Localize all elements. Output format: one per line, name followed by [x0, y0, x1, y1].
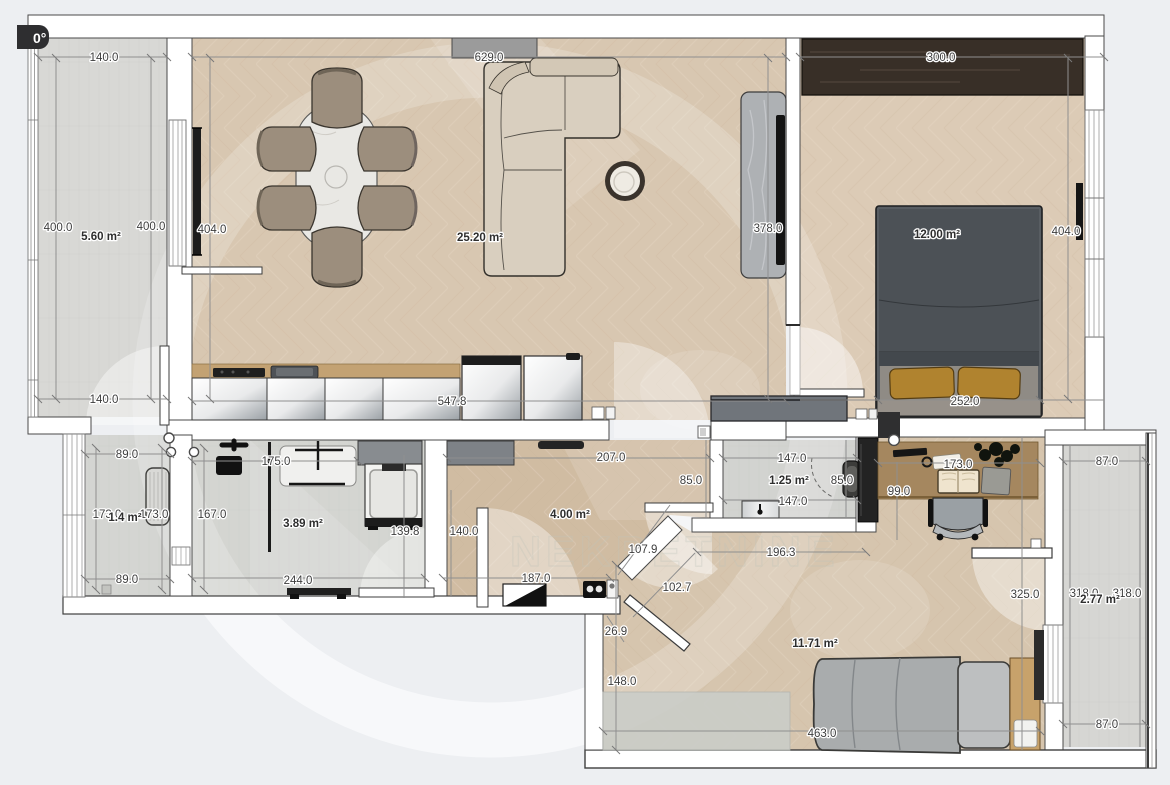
svg-text:147.0: 147.0 — [779, 496, 808, 508]
svg-text:3.89 m²: 3.89 m² — [283, 518, 323, 530]
svg-text:140.0: 140.0 — [90, 52, 119, 64]
svg-text:300.0: 300.0 — [927, 52, 956, 64]
svg-text:102.7: 102.7 — [663, 582, 692, 594]
svg-text:148.0: 148.0 — [608, 676, 637, 688]
svg-text:99.0: 99.0 — [888, 486, 910, 498]
svg-text:175.0: 175.0 — [262, 456, 291, 468]
svg-text:400.0: 400.0 — [44, 222, 73, 234]
svg-text:167.0: 167.0 — [198, 509, 227, 521]
svg-text:0°: 0° — [33, 30, 46, 46]
svg-text:147.0: 147.0 — [778, 453, 807, 465]
svg-text:629.0: 629.0 — [475, 52, 504, 64]
svg-text:5.60 m²: 5.60 m² — [81, 231, 121, 243]
svg-text:2.77 m²: 2.77 m² — [1080, 594, 1120, 606]
svg-text:87.0: 87.0 — [1096, 719, 1118, 731]
svg-text:378.0: 378.0 — [754, 223, 783, 235]
svg-text:463.0: 463.0 — [808, 728, 837, 740]
svg-text:173.0: 173.0 — [944, 459, 973, 471]
svg-text:89.0: 89.0 — [116, 574, 138, 586]
svg-text:139.8: 139.8 — [391, 526, 420, 538]
svg-text:404.0: 404.0 — [198, 224, 227, 236]
svg-text:85.0: 85.0 — [831, 475, 853, 487]
svg-text:107.9: 107.9 — [629, 544, 658, 556]
svg-text:140.0: 140.0 — [450, 526, 479, 538]
svg-text:207.0: 207.0 — [597, 452, 626, 464]
svg-text:252.0: 252.0 — [951, 396, 980, 408]
svg-text:140.0: 140.0 — [90, 394, 119, 406]
svg-text:1.4 m²: 1.4 m² — [108, 512, 141, 524]
svg-text:244.0: 244.0 — [284, 575, 313, 587]
svg-text:85.0: 85.0 — [680, 475, 702, 487]
svg-text:25.20 m²: 25.20 m² — [457, 232, 503, 244]
svg-text:1.25 m²: 1.25 m² — [769, 475, 809, 487]
svg-text:87.0: 87.0 — [1096, 456, 1118, 468]
svg-text:325.0: 325.0 — [1011, 589, 1040, 601]
svg-text:547.8: 547.8 — [438, 396, 467, 408]
svg-text:26.9: 26.9 — [605, 626, 627, 638]
svg-text:196.3: 196.3 — [767, 547, 796, 559]
svg-text:173.0: 173.0 — [140, 509, 169, 521]
svg-text:404.0: 404.0 — [1052, 226, 1081, 238]
svg-text:89.0: 89.0 — [116, 449, 138, 461]
svg-text:400.0: 400.0 — [137, 221, 166, 233]
svg-text:11.71 m²: 11.71 m² — [792, 638, 838, 650]
svg-text:187.0: 187.0 — [522, 573, 551, 585]
svg-text:4.00 m²: 4.00 m² — [550, 509, 590, 521]
svg-text:12.00 m²: 12.00 m² — [914, 229, 960, 241]
